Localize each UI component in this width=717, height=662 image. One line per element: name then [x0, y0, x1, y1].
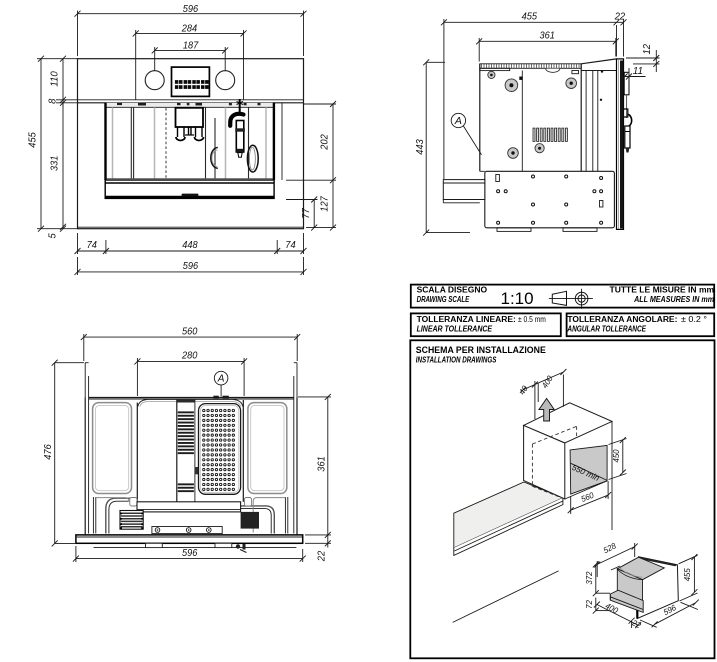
svg-text:372: 372 — [585, 571, 594, 584]
svg-text:127: 127 — [320, 195, 331, 212]
svg-text:DRAWING SCALE: DRAWING SCALE — [417, 295, 470, 304]
svg-text:455: 455 — [522, 11, 538, 22]
svg-text:22: 22 — [614, 11, 626, 22]
svg-text:1:10: 1:10 — [501, 289, 534, 308]
svg-text:22: 22 — [317, 551, 328, 563]
svg-text:77: 77 — [301, 207, 312, 219]
svg-text:5: 5 — [48, 233, 59, 238]
svg-text:455: 455 — [683, 568, 692, 581]
svg-text:284: 284 — [181, 23, 198, 34]
svg-text:74: 74 — [285, 240, 296, 251]
svg-text:443: 443 — [415, 139, 426, 155]
svg-text:560: 560 — [182, 326, 198, 337]
svg-text:± 0.5 mm: ± 0.5 mm — [518, 315, 546, 324]
svg-text:448: 448 — [182, 240, 198, 251]
svg-text:TOLLERANZA ANGOLARE:: TOLLERANZA ANGOLARE: — [567, 314, 677, 324]
svg-text:A: A — [454, 115, 462, 127]
svg-text:450: 450 — [612, 449, 621, 462]
svg-text:ALL MEASURES IN mm: ALL MEASURES IN mm — [633, 295, 714, 304]
svg-text:11: 11 — [633, 66, 643, 77]
svg-text:476: 476 — [43, 444, 54, 460]
svg-text:INSTALLATION DRAWINGS: INSTALLATION DRAWINGS — [416, 355, 497, 364]
svg-text:280: 280 — [181, 351, 198, 362]
svg-text:596: 596 — [182, 548, 198, 559]
svg-text:TOLLERANZA LINEARE:: TOLLERANZA LINEARE: — [417, 314, 516, 324]
svg-text:12: 12 — [642, 44, 653, 55]
svg-text:331: 331 — [50, 156, 61, 171]
svg-text:ANGULAR TOLLERANCE: ANGULAR TOLLERANCE — [567, 325, 647, 334]
svg-text:110: 110 — [50, 71, 61, 87]
svg-text:361: 361 — [540, 30, 555, 41]
svg-text:SCALA DISEGNO: SCALA DISEGNO — [417, 285, 488, 295]
svg-text:74: 74 — [87, 240, 98, 251]
svg-text:A: A — [217, 374, 225, 385]
svg-text:SCHEMA PER INSTALLAZIONE: SCHEMA PER INSTALLAZIONE — [416, 345, 546, 355]
svg-text:596: 596 — [183, 261, 199, 272]
svg-text:TUTTE LE MISURE IN mm: TUTTE LE MISURE IN mm — [610, 285, 715, 295]
svg-text:455: 455 — [28, 132, 39, 148]
svg-text:361: 361 — [317, 456, 328, 471]
svg-text:LINEAR TOLLERANCE: LINEAR TOLLERANCE — [417, 325, 493, 334]
svg-text:72: 72 — [585, 600, 594, 609]
svg-text:202: 202 — [320, 134, 331, 151]
svg-text:187: 187 — [183, 41, 200, 52]
svg-text:8: 8 — [48, 98, 59, 103]
svg-text:± 0.2 °: ± 0.2 ° — [681, 315, 707, 324]
svg-text:596: 596 — [183, 4, 199, 15]
